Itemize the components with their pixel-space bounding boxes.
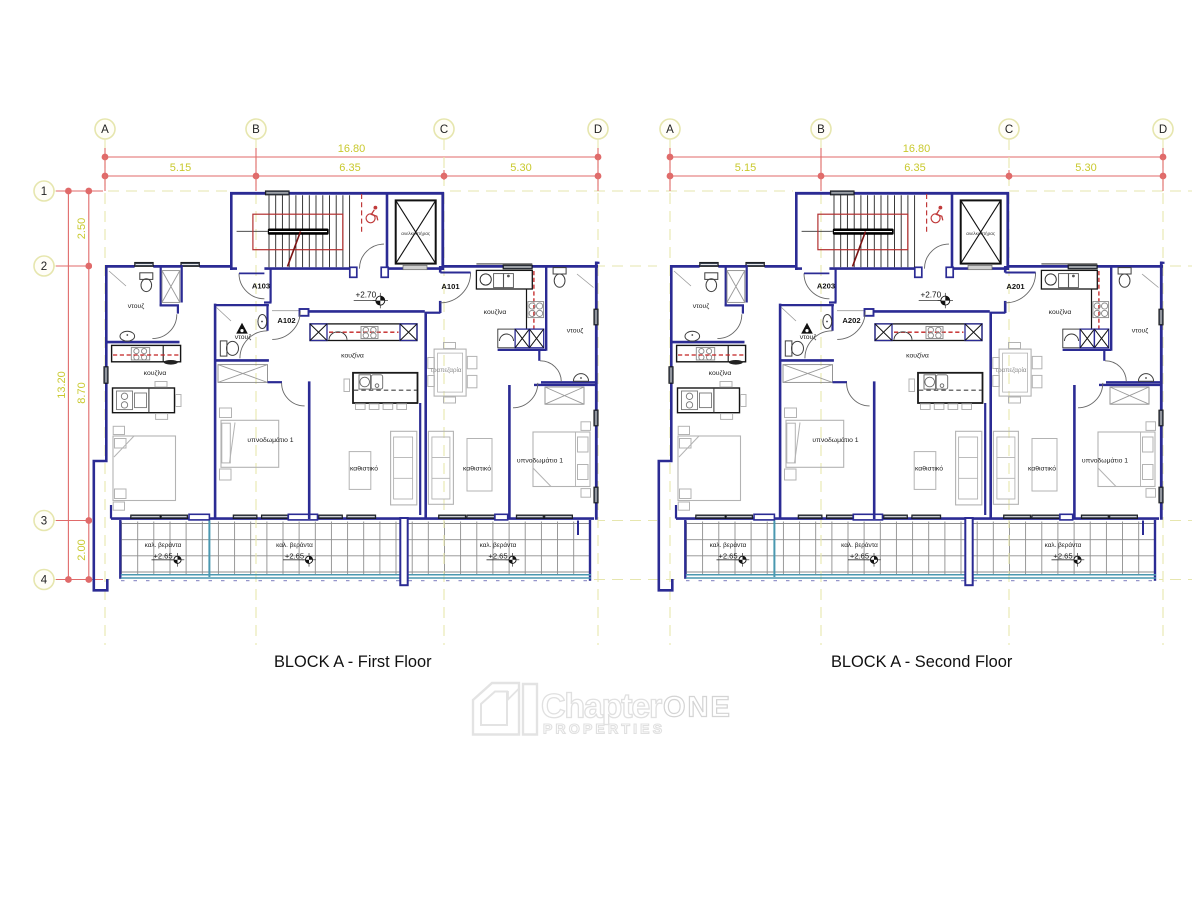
svg-text:2.50: 2.50 <box>76 218 88 239</box>
svg-text:D: D <box>594 124 602 136</box>
svg-text:A101: A101 <box>441 282 460 291</box>
svg-text:καλ. βεράντα: καλ. βεράντα <box>145 541 182 549</box>
svg-text:καθιστικό: καθιστικό <box>915 465 943 473</box>
svg-text:8.70: 8.70 <box>76 382 88 403</box>
svg-text:κουζίνα: κουζίνα <box>1049 308 1072 316</box>
svg-text:ντουζ: ντουζ <box>235 334 251 341</box>
svg-text:5.15: 5.15 <box>735 162 756 174</box>
svg-text:16.80: 16.80 <box>338 143 366 155</box>
svg-text:καλ. βεράντα: καλ. βεράντα <box>841 541 878 549</box>
svg-text:+2.65: +2.65 <box>718 552 737 561</box>
svg-text:A202: A202 <box>842 316 860 325</box>
svg-text:τραπεζαρία: τραπεζαρία <box>431 367 462 374</box>
svg-text:κουζίνα: κουζίνα <box>144 369 167 377</box>
svg-text:κουζίνα: κουζίνα <box>484 308 507 316</box>
svg-text:PROPERTIES: PROPERTIES <box>543 721 665 737</box>
svg-text:καλ. βεράντα: καλ. βεράντα <box>710 541 747 549</box>
svg-text:κουζίνα: κουζίνα <box>709 369 732 377</box>
svg-text:ντουζ: ντουζ <box>567 328 583 335</box>
svg-text:A102: A102 <box>277 316 295 325</box>
svg-text:+2.65: +2.65 <box>285 552 304 561</box>
svg-text:A: A <box>101 124 109 136</box>
svg-text:καλ. βεράντα: καλ. βεράντα <box>276 541 313 549</box>
svg-text:D: D <box>1159 124 1167 136</box>
svg-text:καλ. βεράντα: καλ. βεράντα <box>480 541 517 549</box>
svg-text:B: B <box>817 124 825 136</box>
svg-text:καθιστικό: καθιστικό <box>1028 465 1056 473</box>
svg-text:υπνοδωμάτιο 1: υπνοδωμάτιο 1 <box>247 436 293 444</box>
svg-text:A: A <box>666 124 674 136</box>
svg-text:ντουζ: ντουζ <box>800 334 816 341</box>
svg-text:ανελκυστήρας: ανελκυστήρας <box>966 230 996 236</box>
svg-text:1: 1 <box>41 186 47 198</box>
svg-text:υπνοδωμάτιο 1: υπνοδωμάτιο 1 <box>517 457 563 465</box>
svg-text:5.30: 5.30 <box>510 162 531 174</box>
svg-text:5.30: 5.30 <box>1075 162 1096 174</box>
svg-text:υπνοδωμάτιο 1: υπνοδωμάτιο 1 <box>1082 457 1128 465</box>
svg-text:3: 3 <box>41 516 47 528</box>
svg-text:B: B <box>252 124 260 136</box>
svg-text:+2.65: +2.65 <box>488 552 507 561</box>
svg-text:4: 4 <box>41 575 48 587</box>
svg-text:BLOCK A - First Floor: BLOCK A - First Floor <box>274 653 432 671</box>
svg-text:τραπεζαρία: τραπεζαρία <box>996 367 1027 374</box>
svg-text:6.35: 6.35 <box>339 162 360 174</box>
svg-text:+2.65: +2.65 <box>1053 552 1072 561</box>
svg-text:13.20: 13.20 <box>56 371 68 399</box>
svg-text:C: C <box>440 124 448 136</box>
svg-text:+2.70: +2.70 <box>355 291 376 300</box>
svg-text:ανελκυστήρας: ανελκυστήρας <box>401 230 431 236</box>
svg-text:ντουζ: ντουζ <box>1132 328 1148 335</box>
svg-text:ντουζ: ντουζ <box>693 303 709 310</box>
svg-text:A103: A103 <box>252 282 270 291</box>
svg-text:BLOCK A - Second Floor: BLOCK A - Second Floor <box>831 653 1013 671</box>
svg-text:+2.65: +2.65 <box>850 552 869 561</box>
svg-text:6.35: 6.35 <box>904 162 925 174</box>
svg-text:καθιστικό: καθιστικό <box>350 465 378 473</box>
svg-text:+2.70: +2.70 <box>920 291 941 300</box>
svg-text:A203: A203 <box>817 282 835 291</box>
svg-text:16.80: 16.80 <box>903 143 931 155</box>
svg-text:A201: A201 <box>1006 282 1025 291</box>
svg-text:κουζίνα: κουζίνα <box>341 352 364 360</box>
svg-text:κουζίνα: κουζίνα <box>906 352 929 360</box>
svg-text:+2.65: +2.65 <box>153 552 172 561</box>
svg-text:ONE: ONE <box>663 692 732 724</box>
svg-text:καθιστικό: καθιστικό <box>463 465 491 473</box>
svg-text:C: C <box>1005 124 1013 136</box>
svg-text:υπνοδωμάτιο 1: υπνοδωμάτιο 1 <box>812 436 858 444</box>
svg-text:ντουζ: ντουζ <box>128 303 144 310</box>
svg-text:2.00: 2.00 <box>76 539 88 560</box>
svg-text:καλ. βεράντα: καλ. βεράντα <box>1045 541 1082 549</box>
svg-text:2: 2 <box>41 261 47 273</box>
svg-text:5.15: 5.15 <box>170 162 191 174</box>
